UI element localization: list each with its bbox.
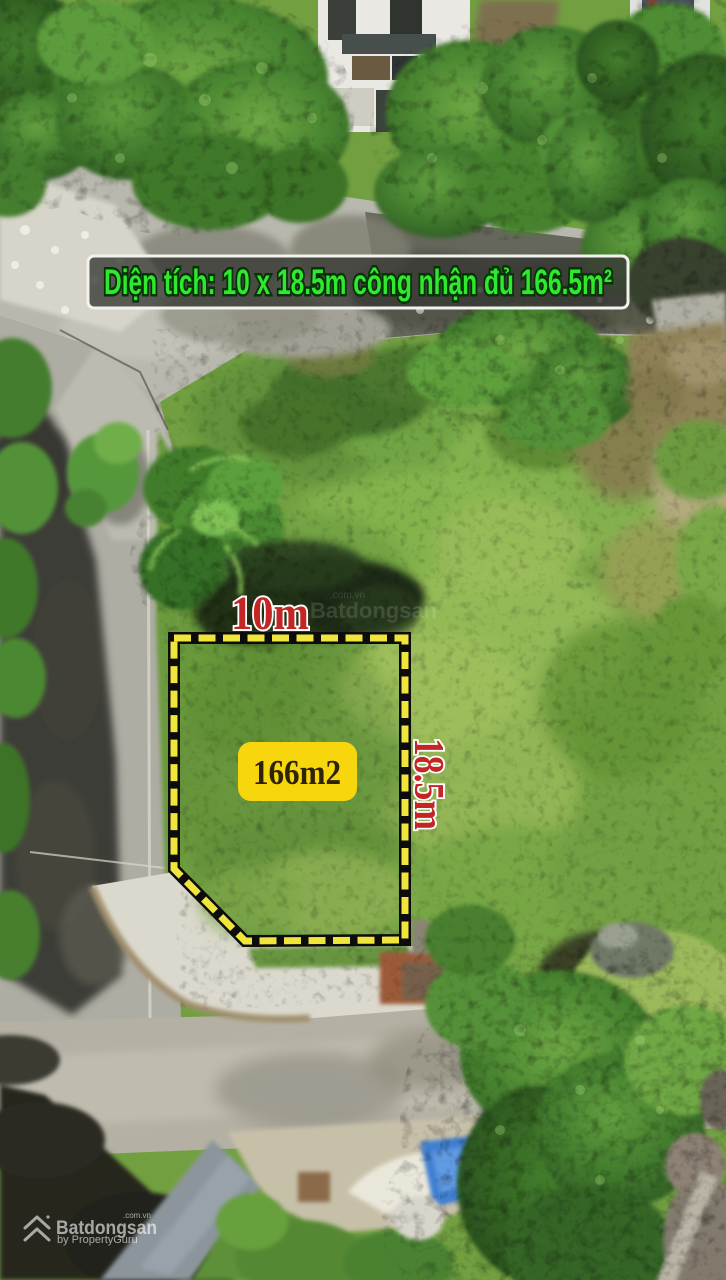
svg-text:Batdongsan: Batdongsan xyxy=(310,598,437,623)
svg-text:18.5m: 18.5m xyxy=(405,738,451,830)
svg-text:Diện tích: 10 x 18.5m công nhậ: Diện tích: 10 x 18.5m công nhận đủ 166.5… xyxy=(104,263,612,302)
svg-text:by PropertyGuru: by PropertyGuru xyxy=(57,1234,138,1246)
svg-text:10m: 10m xyxy=(231,587,309,640)
svg-text:.com.vn: .com.vn xyxy=(123,1211,151,1220)
svg-text:.com.vn: .com.vn xyxy=(330,590,365,601)
svg-text:166m2: 166m2 xyxy=(253,753,341,792)
